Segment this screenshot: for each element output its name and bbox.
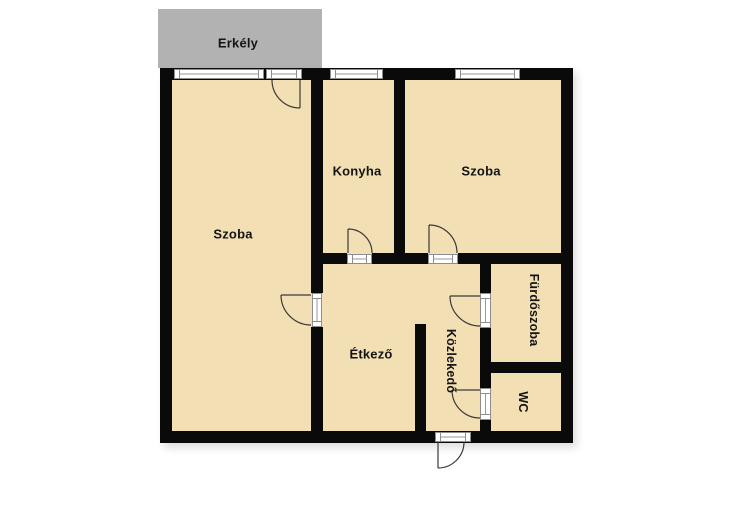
door-wc	[480, 388, 491, 420]
wall-konyha-szoba	[394, 80, 405, 264]
room-label-konyha: Konyha	[333, 164, 382, 179]
wall-furdoszoba-wc	[480, 362, 573, 373]
entrance-door-swing	[438, 442, 464, 468]
wall-horizontal-seg1	[311, 253, 347, 264]
window-szoba-right	[455, 69, 520, 79]
room-label-szoba-left: Szoba	[213, 227, 252, 242]
wall-horizontal-seg2	[372, 253, 428, 264]
door-balcony	[266, 69, 302, 79]
room-label-szoba-right: Szoba	[461, 164, 500, 179]
wall-etkezo-kozlekedo	[415, 324, 426, 431]
wall-outer-left	[160, 68, 172, 443]
door-szoba-left	[312, 293, 322, 327]
door-entrance	[435, 432, 471, 442]
window-konyha	[330, 69, 383, 79]
window-szoba-left	[174, 69, 264, 79]
door-szoba-right	[428, 254, 458, 264]
wall-kozlekedo-right-middle	[480, 328, 491, 388]
floorplan-canvas: Erkély Szoba Konyha Szo	[0, 0, 730, 516]
room-label-balcony: Erkély	[218, 36, 258, 51]
door-konyha	[347, 254, 372, 264]
room-label-etkezo: Étkező	[349, 347, 392, 362]
wall-kozlekedo-right-lower	[480, 420, 491, 431]
room-label-wc: WC	[516, 391, 530, 412]
room-label-furdoszoba: Fürdőszoba	[527, 274, 541, 347]
room-label-kozlekedo: Közlekedő	[444, 329, 458, 393]
wall-outer-bottom	[160, 431, 573, 443]
wall-horizontal-seg3	[458, 253, 573, 264]
door-furdoszoba	[480, 293, 491, 328]
wall-szoba-left-lower	[311, 327, 323, 431]
